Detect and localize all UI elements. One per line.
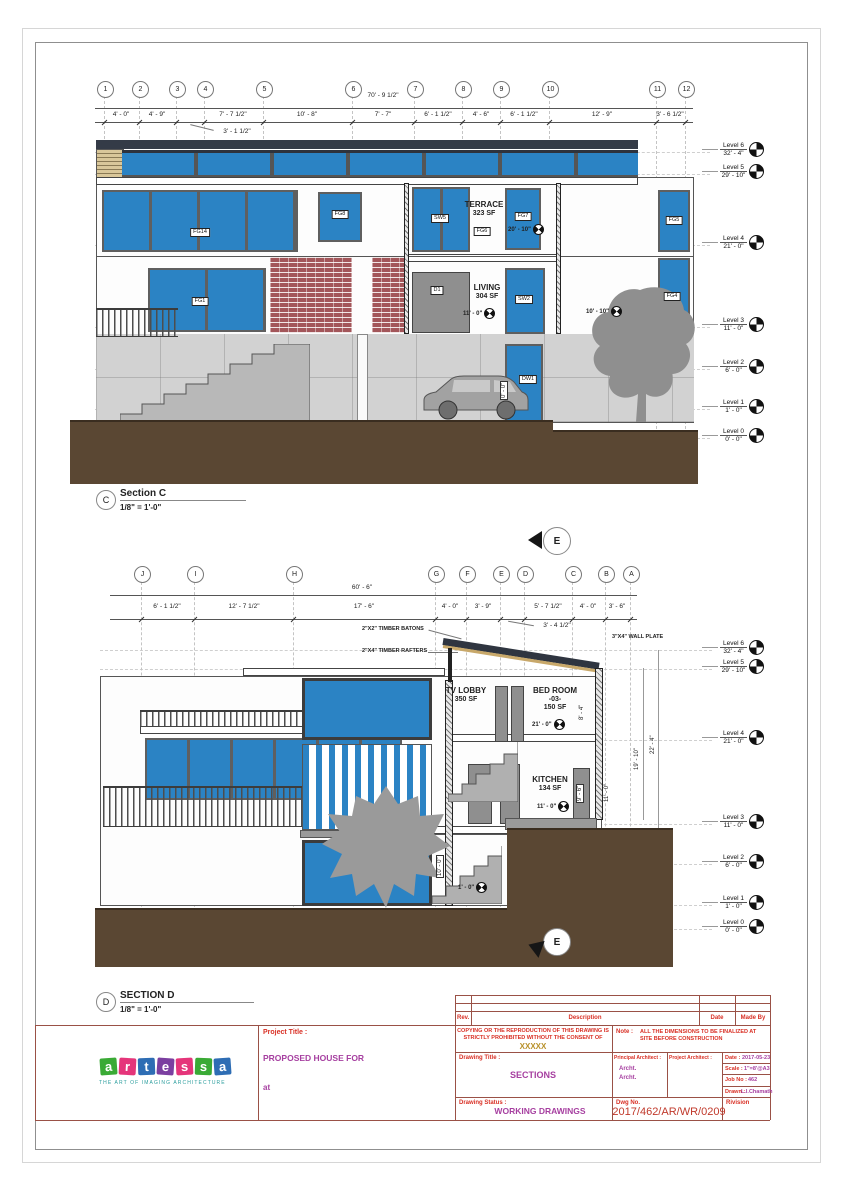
leader-line xyxy=(428,652,458,653)
level-name: Level 6 xyxy=(720,640,747,648)
tag-vertical: 10' - 0" xyxy=(436,855,444,878)
copyright-line1: COPYING OR THE REPRODUCTION OF THIS DRAW… xyxy=(457,1028,609,1034)
section-bubble-letter: D xyxy=(103,997,110,1007)
tb-line xyxy=(471,995,472,1025)
dim-extension xyxy=(643,668,644,820)
grid-bubble: E xyxy=(493,566,510,583)
room-label-bedroom: BED ROOM -03- 150 SF xyxy=(533,686,577,712)
project-architect-label: Project Architect : xyxy=(669,1055,712,1061)
grid-label: 6 xyxy=(352,86,356,93)
stair-door xyxy=(495,686,508,742)
section-title: Section C xyxy=(120,488,246,501)
datum-icon xyxy=(749,359,764,374)
dimension-line xyxy=(95,108,693,109)
stair-door xyxy=(511,686,524,742)
datum-icon xyxy=(749,895,764,910)
grid-label: 7 xyxy=(414,86,418,93)
spot-symbol-icon xyxy=(476,882,487,893)
level-name: Level 6 xyxy=(720,142,747,150)
datum-icon xyxy=(749,317,764,332)
dimension: 4' - 9" xyxy=(149,111,166,118)
spot-value: 11' - 0" xyxy=(463,311,482,317)
level-elev: 6' - 0" xyxy=(725,367,742,374)
grid-bubble: 4 xyxy=(197,81,214,98)
section-scale: 1/8" = 1'-0" xyxy=(120,1005,161,1014)
brick-wall xyxy=(270,257,352,333)
level-marker: Level 26' - 0" xyxy=(702,359,764,374)
dimension-line xyxy=(110,595,637,596)
date-label: Date : xyxy=(725,1055,740,1061)
dimension-line xyxy=(95,122,693,123)
dimension: 6' - 1 1/2" xyxy=(424,111,451,118)
tb-line xyxy=(770,995,771,1120)
room-label-tvlobby: TV LOBBY 350 SF xyxy=(446,686,486,704)
grid-label: 8 xyxy=(462,86,466,93)
datum-icon xyxy=(749,814,764,829)
room-area: 150 SF xyxy=(533,704,577,712)
logo-letter: t xyxy=(138,1058,156,1076)
tb-line xyxy=(455,1003,770,1004)
grid-bubble: F xyxy=(459,566,476,583)
spot-symbol-icon xyxy=(533,224,544,235)
grid-bubble: A xyxy=(623,566,640,583)
annotation: 2"X2" TIMBER BATONS xyxy=(362,626,424,632)
level-name: Level 0 xyxy=(720,428,747,436)
note-label: Note : xyxy=(616,1029,633,1035)
dimension: 4' - 6" xyxy=(473,111,490,118)
roof-post xyxy=(448,648,452,682)
spot-symbol-icon xyxy=(554,719,565,730)
principal-architect-label: Principal Architect : xyxy=(614,1055,661,1061)
level-marker: Level 311' - 0" xyxy=(702,317,764,332)
datum-icon xyxy=(749,235,764,250)
vertical-dimension: 8' - 4" xyxy=(579,705,585,720)
grid-label: I xyxy=(195,571,197,578)
grid-label: C xyxy=(571,571,576,578)
tb-line xyxy=(258,1025,259,1120)
dimension: 17' - 6" xyxy=(354,603,374,610)
grid-bubble: 11 xyxy=(649,81,666,98)
section-cut-letter: E xyxy=(554,536,561,547)
annotation-text: 2"X2" TIMBER BATONS xyxy=(362,626,424,632)
dimension: 4' - 0" xyxy=(113,111,130,118)
dimension: 12' - 9" xyxy=(592,111,612,118)
grid-bubble: H xyxy=(286,566,303,583)
level-elev: 1' - 0" xyxy=(725,903,742,910)
level-name: Level 1 xyxy=(720,895,747,903)
annotation-text: 2"X4" TIMBER RAFTERS xyxy=(362,648,427,654)
datum-icon xyxy=(749,164,764,179)
grid-label: H xyxy=(292,571,297,578)
description-col-header: Description xyxy=(568,1015,601,1021)
tb-line xyxy=(35,1025,36,1120)
grid-bubble: 2 xyxy=(132,81,149,98)
level-marker: Level 311' - 0" xyxy=(702,814,764,829)
datum-icon xyxy=(749,854,764,869)
scale-value: 1"=8'@A3 xyxy=(744,1066,770,1072)
level-name: Level 5 xyxy=(720,164,747,172)
spot-value: 10' - 10" xyxy=(586,309,609,315)
level-elev: 6' - 0" xyxy=(725,862,742,869)
spot-elevation: 1' - 0" xyxy=(458,882,487,893)
window-tag: FG8 xyxy=(332,210,349,219)
copyright-name: XXXXX xyxy=(520,1042,547,1051)
section-title: SECTION D xyxy=(120,990,254,1003)
clerestory-windows xyxy=(122,150,638,177)
level-marker: Level 529' - 10" xyxy=(702,659,764,674)
drawing-title: SECTIONS xyxy=(510,1070,556,1080)
level-elev: 32' - 4" xyxy=(723,150,743,157)
logo-tagline: THE ART OF IMAGING ARCHITECTURE xyxy=(99,1080,226,1086)
room-number: -03- xyxy=(533,696,577,704)
tree xyxy=(580,282,700,432)
tb-line xyxy=(722,1063,770,1064)
copyright-line2: STRICTLY PROHIBITED WITHOUT THE CONSENT … xyxy=(463,1035,602,1041)
logo-letter: a xyxy=(99,1057,117,1075)
level-marker: Level 26' - 0" xyxy=(702,854,764,869)
grid-bubble: 5 xyxy=(256,81,273,98)
level-marker: Level 00' - 0" xyxy=(702,428,764,443)
job-label: Job No : xyxy=(725,1077,747,1083)
window-tag: FG6 xyxy=(474,227,491,236)
stairs xyxy=(448,742,518,802)
grid-label: B xyxy=(604,571,609,578)
cut-wall xyxy=(556,183,561,334)
tb-line xyxy=(699,995,700,1025)
grid-label: 12 xyxy=(683,86,691,93)
datum-icon xyxy=(749,919,764,934)
annotation: 2"X4" TIMBER RAFTERS xyxy=(362,648,427,654)
datum-icon xyxy=(749,428,764,443)
grid-bubble: 6 xyxy=(345,81,362,98)
grid-label: 3 xyxy=(176,86,180,93)
madeby-col-header: Made By xyxy=(741,1015,766,1021)
logo-letter: e xyxy=(156,1057,174,1075)
room-area: 134 SF xyxy=(532,785,568,793)
window-tag: FG7 xyxy=(515,212,532,221)
dimension: 4' - 0" xyxy=(580,603,597,610)
logo-letter: s xyxy=(176,1058,194,1076)
dimension: 12' - 7 1/2" xyxy=(228,603,259,610)
level-name: Level 1 xyxy=(720,399,747,407)
cut-wall xyxy=(595,668,603,820)
window-fg14 xyxy=(102,190,298,252)
grid-label: G xyxy=(434,571,439,578)
room-area: 350 SF xyxy=(446,696,486,704)
dimension: 10' - 8" xyxy=(297,111,317,118)
spot-elevation: 11' - 0" xyxy=(463,308,495,319)
grid-bubble: 3 xyxy=(169,81,186,98)
door-tag: D1 xyxy=(430,286,443,295)
drawing-sheet: 1 2 3 4 5 6 7 8 9 10 11 12 70' - 9 1/2" … xyxy=(0,0,842,1191)
dimension: 6' - 1 1/2" xyxy=(510,111,537,118)
grid-label: A xyxy=(629,571,634,578)
level-marker: Level 11' - 0" xyxy=(702,399,764,414)
tb-line xyxy=(455,995,456,1120)
tb-line xyxy=(667,1052,668,1097)
spot-elevation: 11' - 0" xyxy=(537,801,569,812)
car xyxy=(418,366,530,424)
grid-label: D xyxy=(523,571,528,578)
annotation: 3"X4" WALL PLATE xyxy=(612,634,663,640)
tb-line xyxy=(35,1025,770,1026)
window-tag: SW5 xyxy=(431,214,449,223)
datum-icon xyxy=(749,659,764,674)
spot-elevation: 21' - 0" xyxy=(532,719,565,730)
dimension: 3' - 9" xyxy=(475,603,492,610)
logo-letter: a xyxy=(213,1057,231,1075)
brick-wall xyxy=(372,257,404,333)
level-name: Level 2 xyxy=(720,854,747,862)
room-area: 323 SF xyxy=(465,210,504,218)
project-location: at xyxy=(263,1083,270,1092)
room-name: KITCHEN xyxy=(532,775,568,785)
project-title: PROPOSED HOUSE FOR xyxy=(263,1053,364,1063)
dimension: 3' - 6" xyxy=(609,603,626,610)
floor-slab xyxy=(445,734,603,742)
dimension: 3' - 6 1/2" xyxy=(656,111,683,118)
dimension: 7' - 7 1/2" xyxy=(219,111,246,118)
room-name: BED ROOM xyxy=(533,686,577,696)
drawn-value: L.I.Chamath xyxy=(741,1089,772,1095)
section-cut-letter: E xyxy=(554,937,561,948)
level-name: Level 4 xyxy=(720,730,747,738)
dimension: 7' - 7" xyxy=(375,111,392,118)
spot-elevation: 20' - 10" xyxy=(508,224,544,235)
rev-col-header: Rev. xyxy=(457,1015,469,1021)
grid-bubble: 10 xyxy=(542,81,559,98)
grid-bubble: 12 xyxy=(678,81,695,98)
window-tag: FG5 xyxy=(666,216,683,225)
level-marker: Level 632' - 4" xyxy=(702,640,764,655)
overall-dimension: 70' - 9 1/2" xyxy=(367,92,398,99)
sub-dimension: 3' - 4 1/2" xyxy=(543,622,570,629)
roof-slab xyxy=(96,140,638,149)
spot-value: 11' - 0" xyxy=(537,804,556,810)
room-label-terrace: TERRACE 323 SF xyxy=(465,200,504,218)
level-marker: Level 421' - 0" xyxy=(702,235,764,250)
grid-bubble: 9 xyxy=(493,81,510,98)
level-elev: 0' - 0" xyxy=(725,927,742,934)
level-elev: 32' - 4" xyxy=(723,648,743,655)
window-tag: FG14 xyxy=(190,228,210,237)
grid-label: 5 xyxy=(263,86,267,93)
dimension-line xyxy=(110,619,637,620)
job-value: 462 xyxy=(748,1077,757,1083)
spot-value: 1' - 0" xyxy=(458,885,474,891)
grid-bubble: 7 xyxy=(407,81,424,98)
window-tag: SW2 xyxy=(515,295,533,304)
architect-value: Archt. xyxy=(619,1075,636,1081)
door-tag: DW1 xyxy=(519,375,537,384)
artessa-logo: a r t e s s a xyxy=(100,1058,231,1075)
level-elev: 1' - 0" xyxy=(725,407,742,414)
project-title-label: Project Title : xyxy=(263,1029,307,1036)
grid-bubble: J xyxy=(134,566,151,583)
section-bubble: C xyxy=(96,490,116,510)
room-label-kitchen: KITCHEN 134 SF xyxy=(532,775,568,793)
roof-fascia xyxy=(243,668,445,676)
dwg-no: 2017/462/AR/WR/0209 xyxy=(612,1106,725,1118)
cut-wall xyxy=(404,183,409,334)
column xyxy=(357,334,368,424)
datum-icon xyxy=(749,399,764,414)
level-elev: 21' - 0" xyxy=(723,243,743,250)
room-name: TV LOBBY xyxy=(446,686,486,696)
ground xyxy=(553,430,698,484)
grid-label: E xyxy=(499,571,504,578)
section-bubble: D xyxy=(96,992,116,1012)
logo-letter: r xyxy=(119,1058,137,1076)
level-elev: 21' - 0" xyxy=(723,738,743,745)
level-name: Level 4 xyxy=(720,235,747,243)
level-name: Level 5 xyxy=(720,659,747,667)
room-area: 304 SF xyxy=(474,293,501,301)
section-bubble-letter: C xyxy=(103,495,110,505)
tb-line xyxy=(35,1120,770,1121)
datum-icon xyxy=(749,640,764,655)
level-marker: Level 421' - 0" xyxy=(702,730,764,745)
grid-bubble: C xyxy=(565,566,582,583)
window-tag: FG1 xyxy=(192,297,209,306)
tree xyxy=(322,786,450,908)
level-elev: 11' - 0" xyxy=(724,822,744,829)
architect-value: Archt. xyxy=(619,1066,636,1072)
level-elev: 11' - 0" xyxy=(724,325,744,332)
sub-dimension: 3' - 1 1/2" xyxy=(223,128,250,135)
section-scale: 1/8" = 1'-0" xyxy=(120,503,161,512)
grid-label: J xyxy=(141,571,145,578)
door-d1 xyxy=(412,272,470,333)
room-name: LIVING xyxy=(474,283,501,293)
upper-window xyxy=(302,678,432,740)
spot-symbol-icon xyxy=(484,308,495,319)
datum-icon xyxy=(749,142,764,157)
level-marker: Level 00' - 0" xyxy=(702,919,764,934)
grid-label: 9 xyxy=(500,86,504,93)
section-cut-marker: E xyxy=(543,928,571,956)
revision-label: Rivision xyxy=(726,1100,749,1106)
balcony-railing xyxy=(96,308,178,337)
level-elev: 0' - 0" xyxy=(725,436,742,443)
stairs xyxy=(120,344,310,422)
level-name: Level 3 xyxy=(720,317,747,325)
room-label-living: LIVING 304 SF xyxy=(474,283,501,301)
tb-line xyxy=(455,995,770,996)
grid-bubble: 8 xyxy=(455,81,472,98)
grid-label: 10 xyxy=(547,86,555,93)
drawing-status: WORKING DRAWINGS xyxy=(494,1106,585,1116)
section-cut-arrow-icon xyxy=(528,531,542,549)
grid-label: 11 xyxy=(654,86,661,93)
grid-bubble: B xyxy=(598,566,615,583)
logo-letter: s xyxy=(195,1058,213,1076)
scale-label: Scale : xyxy=(725,1066,743,1072)
tb-line xyxy=(722,1086,770,1087)
spot-value: 21' - 0" xyxy=(532,722,552,728)
grid-bubble: D xyxy=(517,566,534,583)
spot-value-vertical: 0' - 0" xyxy=(500,381,508,400)
grid-bubble: 1 xyxy=(97,81,114,98)
grid-label: F xyxy=(465,571,469,578)
spot-symbol-icon xyxy=(558,801,569,812)
spot-elevation: 10' - 10" xyxy=(586,306,622,317)
dimension: 5' - 7 1/2" xyxy=(534,603,561,610)
level-name: Level 3 xyxy=(720,814,747,822)
room-name: TERRACE xyxy=(465,200,504,210)
roof-vent xyxy=(96,149,124,178)
vertical-dimension: 11' - 0" xyxy=(604,784,610,802)
level-marker: Level 529' - 10" xyxy=(702,164,764,179)
door-tag-vertical: 9' - 6" xyxy=(576,784,584,803)
overall-dimension: 60' - 6" xyxy=(352,584,372,591)
ground xyxy=(95,908,507,967)
section-cut-marker: E xyxy=(543,527,571,555)
drawing-title-label: Drawing Title : xyxy=(459,1055,500,1061)
annotation-text: 3"X4" WALL PLATE xyxy=(612,634,663,640)
vertical-dimension: 19' - 10" xyxy=(634,748,640,770)
level-elev: 29' - 10" xyxy=(722,667,746,674)
level-name: Level 2 xyxy=(720,359,747,367)
note-text: ALL THE DIMENSIONS TO BE FINALIZED AT SI… xyxy=(640,1029,766,1043)
grid-bubble: I xyxy=(187,566,204,583)
level-marker: Level 11' - 0" xyxy=(702,895,764,910)
ground xyxy=(70,420,553,484)
level-elev: 29' - 10" xyxy=(722,172,746,179)
grid-label: 2 xyxy=(139,86,143,93)
tb-line xyxy=(722,1074,770,1075)
dimension: 6' - 1 1/2" xyxy=(153,603,180,610)
level-name: Level 0 xyxy=(720,919,747,927)
grid-label: 1 xyxy=(104,86,108,93)
level-marker: Level 632' - 4" xyxy=(702,142,764,157)
datum-icon xyxy=(749,730,764,745)
grid-bubble: G xyxy=(428,566,445,583)
tb-line xyxy=(735,995,736,1025)
window-tag: FG4 xyxy=(664,292,681,301)
date-col-header: Date xyxy=(710,1015,723,1021)
spot-value: 20' - 10" xyxy=(508,227,531,233)
vertical-dimension: 22' - 4" xyxy=(650,735,656,754)
date-value: 2017-05-23 xyxy=(742,1055,770,1061)
tb-line xyxy=(455,1011,770,1012)
grid-label: 4 xyxy=(204,86,208,93)
spot-symbol-icon xyxy=(611,306,622,317)
dimension: 4' - 0" xyxy=(442,603,459,610)
